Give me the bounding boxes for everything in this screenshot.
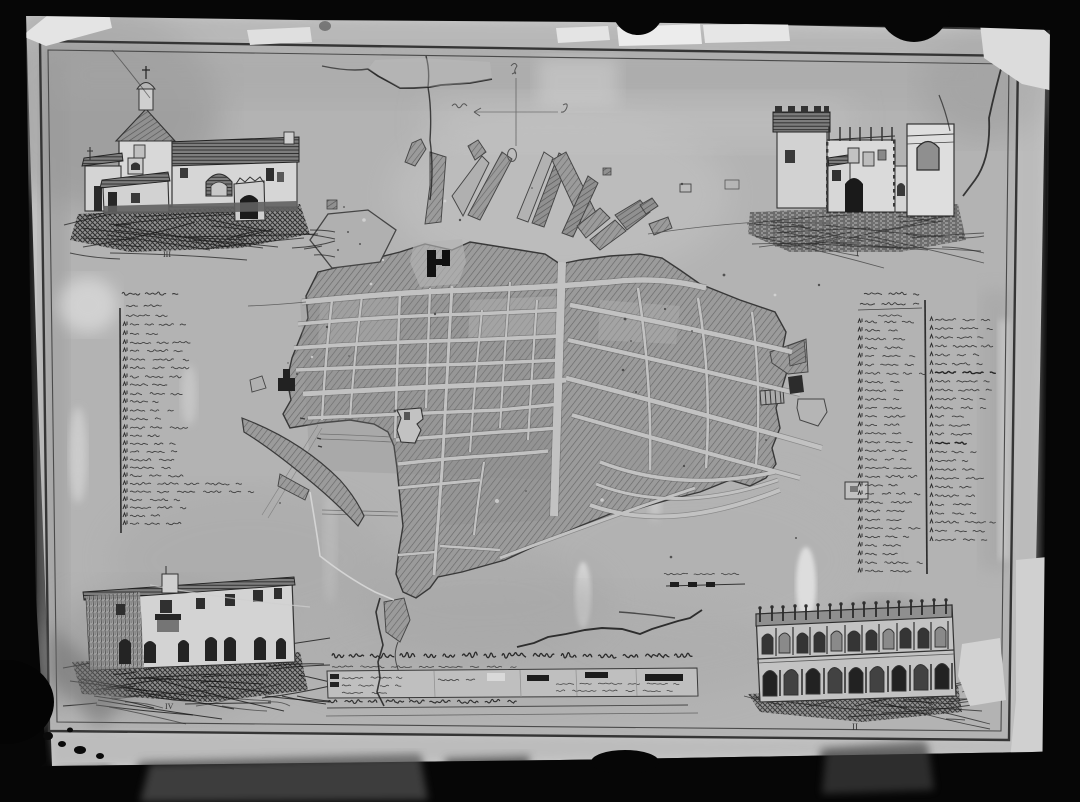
- svg-text:II: II: [852, 722, 858, 732]
- svg-text:III: III: [163, 250, 171, 259]
- svg-text:I: I: [856, 249, 859, 258]
- svg-text:IV: IV: [165, 702, 174, 711]
